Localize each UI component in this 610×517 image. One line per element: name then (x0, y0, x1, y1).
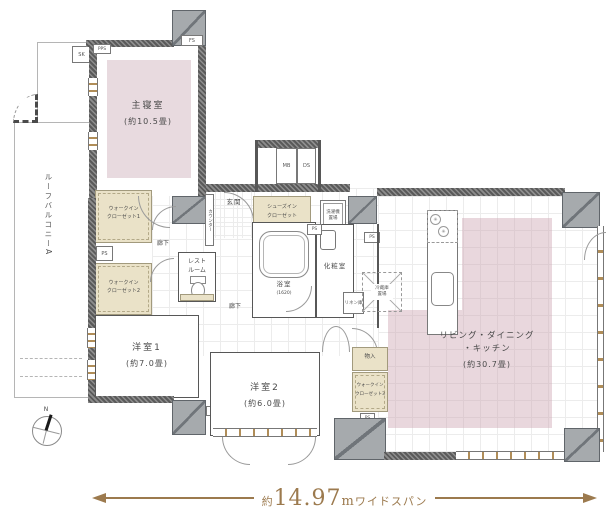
pillar-ldk-topright (562, 192, 600, 228)
fridge-label-chip: 冷蔵庫 置場 (371, 284, 393, 300)
ldk-label-line1: リビング・ダイニング (398, 330, 576, 342)
powder-room-label: 化粧室 (316, 262, 354, 271)
room2-balcony-door-arc-1 (222, 437, 250, 465)
room2-balcony-door-arc-2 (288, 437, 316, 465)
wall-master-right (198, 40, 206, 198)
window-ldk-bottom (456, 451, 564, 460)
wic3-label-line1: ウォークイン (352, 383, 388, 390)
master-bedroom-size: (約10.5畳) (97, 116, 199, 128)
restroom-label-line2: ルーム (178, 267, 216, 276)
wall-niche-left (255, 140, 258, 192)
roof-balcony-label: ルーフバルコニーA (42, 150, 53, 280)
pillar-master-bottom (172, 196, 206, 224)
window-master-2 (88, 132, 98, 150)
compass-icon: N (26, 406, 66, 452)
ps-box-powder: PS (307, 224, 322, 235)
pillar-ldk-bottomright (564, 428, 600, 462)
ldk-size: (約30.7畳) (398, 359, 576, 371)
dimension-unit: m (342, 494, 355, 509)
restroom-label-line1: レスト (178, 258, 216, 267)
stove-burner-2: ✳ (438, 226, 449, 237)
bathtub (259, 231, 309, 278)
kitchen-sink (431, 272, 454, 306)
restroom-shelf (180, 294, 214, 301)
wic2-label-line1: ウォークイン (95, 280, 152, 287)
room1-size: (約7.0畳) (95, 358, 199, 370)
ps-label: PS (101, 251, 107, 257)
room2-label: 洋室2 (210, 382, 320, 395)
balcony-dashed-line (20, 376, 82, 377)
counter-label: カウンター (207, 209, 213, 232)
arrow-right-icon (583, 493, 597, 503)
fridge-label-line2: 置場 (375, 292, 389, 298)
meter-box: MB (276, 148, 297, 184)
sk-label: SK (78, 52, 84, 58)
arrow-left-icon (92, 493, 106, 503)
wic3-label-line2: クローゼット3 (352, 392, 388, 399)
wic2-label-line2: クローゼット2 (95, 288, 152, 295)
ldk-label-line2: ・キッチン (398, 343, 576, 355)
pps-box: PPS (93, 44, 111, 54)
fs-label: FS (189, 38, 195, 44)
pillar-room1-bottom (172, 400, 206, 435)
ps-label: PS (312, 227, 318, 232)
dimension-arrow: 約 14.97 m ワイドスパン (92, 484, 597, 512)
burner-glyph: ✳ (441, 229, 445, 235)
entrance-counter: カウンター (205, 194, 214, 246)
pillar-bottom-center (334, 418, 386, 460)
fs-box: FS (181, 35, 203, 46)
floor-plan: ルーフバルコニーA SK 主寝室 (約10.5畳) PPS FS ウォークイン … (0, 0, 610, 517)
dimension-text: 約 14.97 m ワイドスパン (262, 486, 428, 511)
arrow-line-right (435, 497, 583, 499)
storage-label: 物入 (352, 354, 388, 362)
linen-label: リネン庫 (345, 300, 363, 306)
dimension-value: 14.97 (274, 486, 342, 511)
stove-burner-1: ✳ (430, 214, 441, 225)
balcony-gate-arc (13, 94, 38, 123)
master-bedroom-label: 主寝室 (97, 100, 199, 113)
window-master-1 (88, 78, 98, 96)
washer-label-line2: 置場 (326, 216, 340, 222)
wall-ldk-top (377, 188, 565, 196)
dimension-suffix: ワイドスパン (355, 493, 428, 509)
shoe-closet-label-line1: シューズイン (253, 204, 311, 211)
duct-space-box: DS (297, 148, 316, 184)
washbasin (320, 230, 336, 250)
wall-niche-right (318, 140, 321, 192)
burner-glyph: ✳ (433, 217, 437, 223)
ps-box-left: PS (96, 246, 113, 261)
linen-storage: リネン庫 (343, 292, 364, 314)
wall-meter-niche (258, 140, 320, 148)
ds-label: DS (303, 163, 310, 169)
pps-label: PPS (98, 47, 106, 52)
dimension-prefix: 約 (262, 493, 274, 509)
wall-entry-top (206, 184, 350, 192)
arrow-line-left (106, 497, 254, 499)
corridor-label-1: 廊下 (150, 240, 176, 249)
compass-north-label: N (40, 406, 52, 415)
pillar-entry-right (348, 196, 377, 224)
balcony-dashed-line (20, 358, 82, 359)
mb-label: MB (283, 163, 291, 169)
wall-master-left (89, 45, 97, 198)
wall-ldk-bottom-left (384, 452, 460, 460)
shoe-closet-label-line2: クローゼット (253, 213, 311, 220)
corridor-label-2: 廊下 (222, 303, 248, 312)
room1-label: 洋室1 (95, 342, 199, 355)
ps-label: PS (369, 235, 375, 240)
wall-room1-bottom (88, 396, 174, 403)
window-room2-bottom (213, 428, 317, 437)
room2-size: (約6.0畳) (210, 398, 320, 410)
room1 (95, 315, 199, 398)
